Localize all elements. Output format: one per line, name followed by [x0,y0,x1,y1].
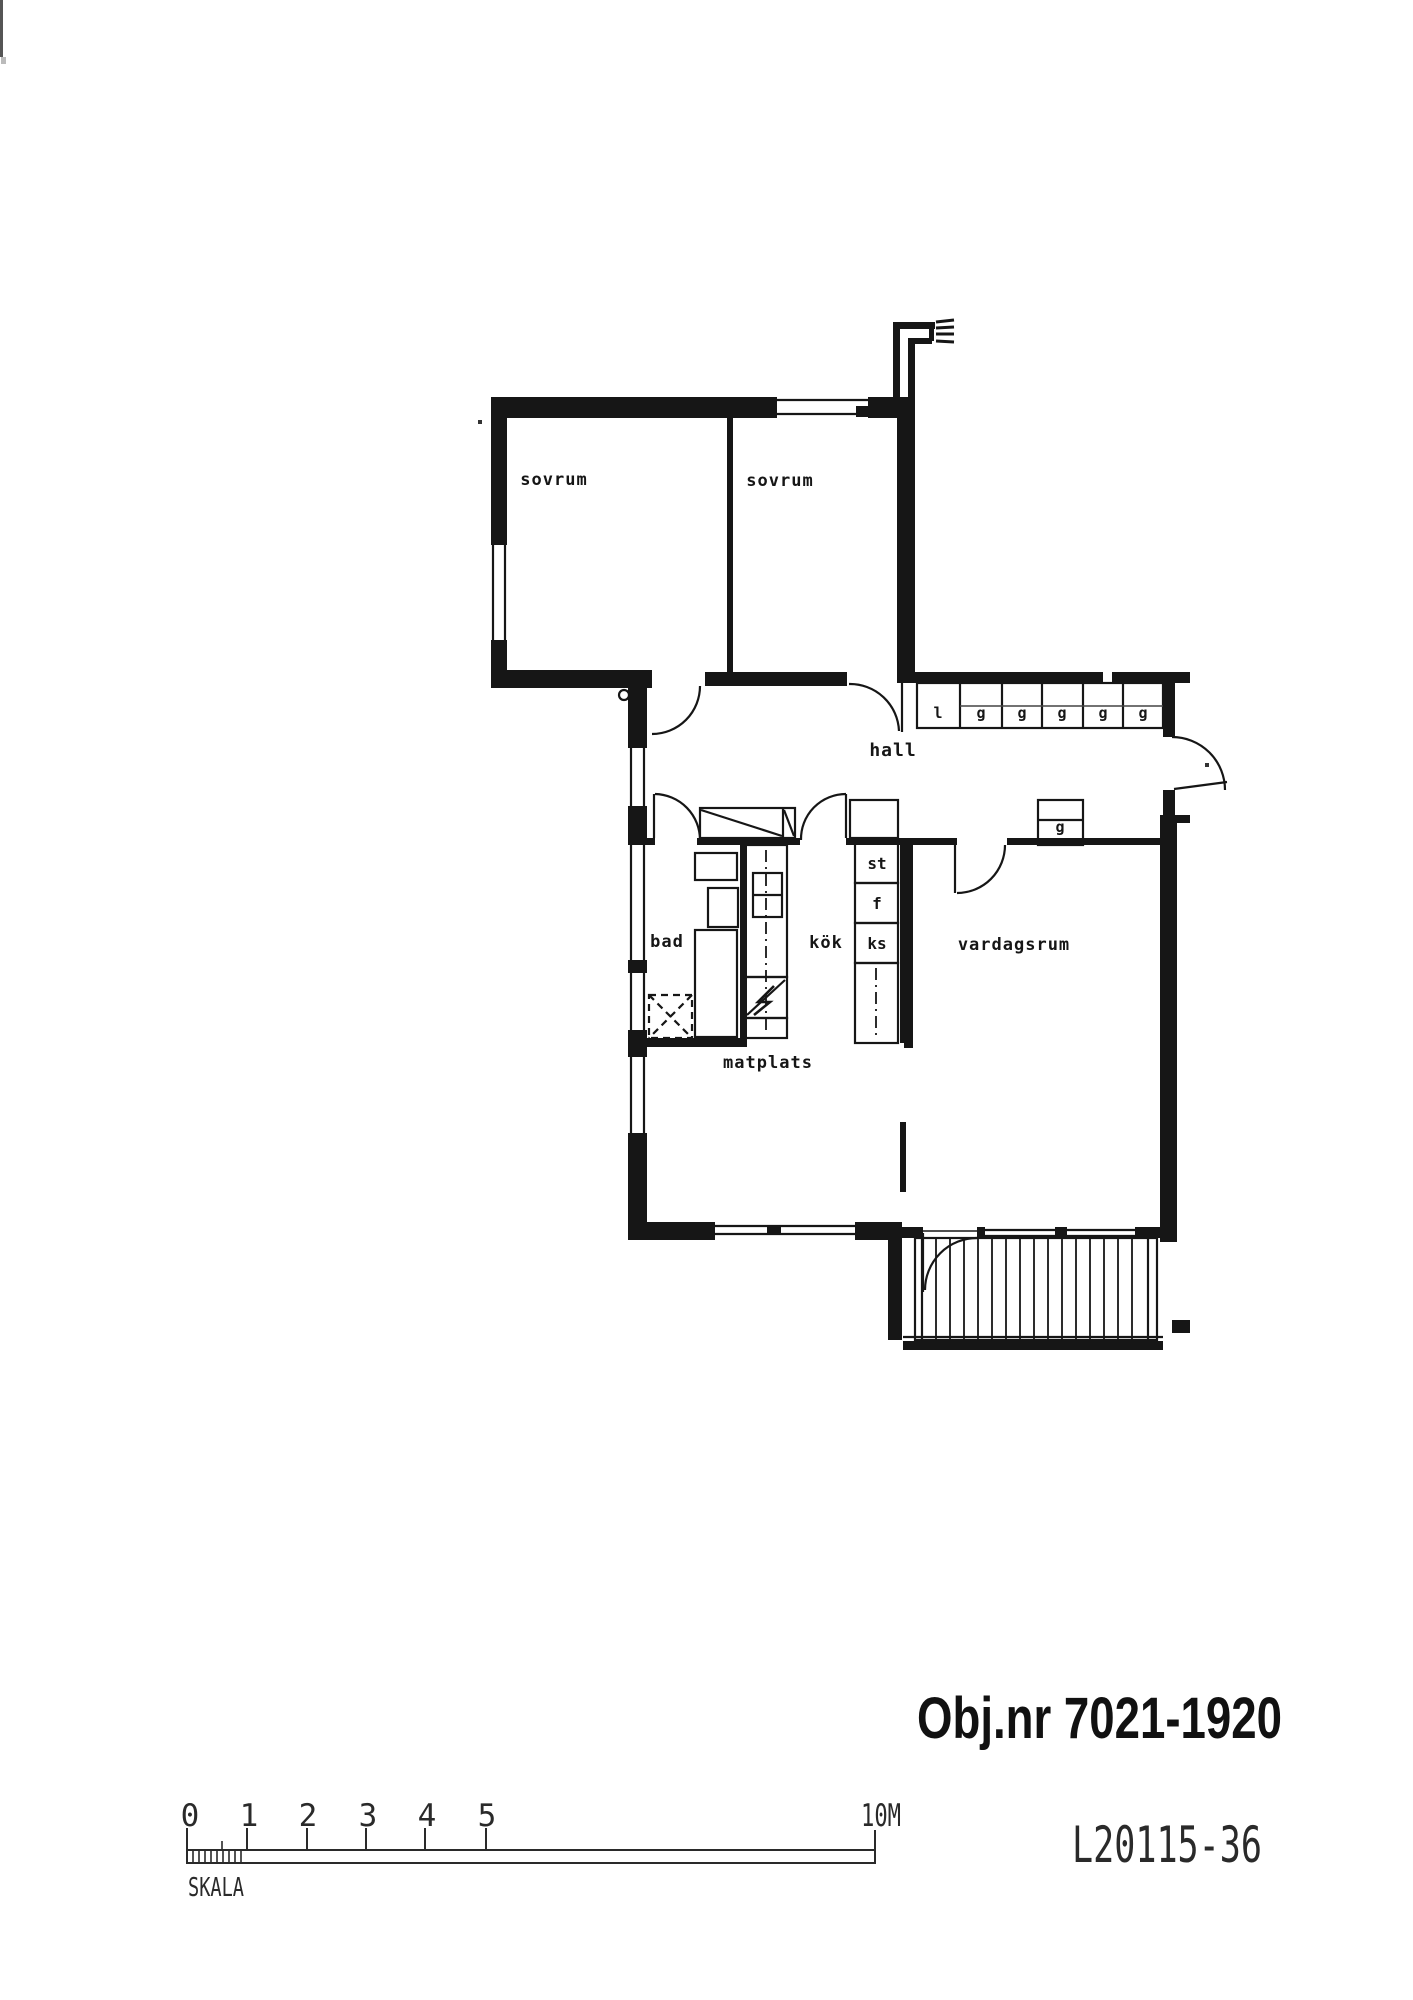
scale-major-ticks [187,1828,875,1863]
floor-plan-canvas: l g g g g g g [0,0,1413,2000]
room-label-sovrum-right: sovrum [746,471,813,491]
closet-g1-label: g [976,704,985,722]
door-arc-sovrum-right [849,684,899,731]
scale-end-label: 10M [861,1798,901,1834]
scan-artifacts [0,0,1209,767]
scale-tick-0: 0 [181,1798,200,1834]
door-arc-balcony [925,1238,977,1290]
hall-furniture [700,800,898,838]
kitchen-unit-labels: st f ks [867,854,886,953]
balcony-planks [936,1238,1132,1340]
closet-g5-label: g [1138,704,1147,722]
sink [695,853,737,880]
floorplan-page: l g g g g g g [0,0,1413,2000]
room-label-hall: hall [869,740,916,761]
scale-tick-1: 1 [240,1798,259,1834]
toilet [708,888,738,927]
closet-l-label: l [933,704,942,722]
scale-tick-5: 5 [478,1798,497,1834]
st-label: st [867,854,886,873]
bathtub [695,930,737,1037]
object-number: Obj.nr 7021-1920 [917,1686,1282,1751]
scale-tick-3: 3 [359,1798,378,1834]
door-arc-bad [655,794,700,840]
scale-bar [187,1828,875,1863]
room-label-matplats: matplats [723,1053,813,1073]
drawing-number: L20115-36 [1072,1816,1262,1874]
wardrobe-row [917,683,1163,728]
balcony [903,1238,1163,1350]
corner-pivot-mark [619,690,629,700]
door-arc-sovrum-left [652,686,700,734]
closet-g-vardagsrum-label: g [1055,818,1064,836]
closet-g4-label: g [1098,704,1107,722]
room-label-kok: kök [809,933,843,953]
closet-g2-label: g [1017,704,1026,722]
door-arc-entrance [1172,737,1225,790]
scale-subticks [193,1841,241,1863]
door-arc-kok [801,794,846,840]
closet-g3-label: g [1057,704,1066,722]
doors [619,683,1227,1292]
wall-break-hatch [936,320,954,342]
room-label-vardagsrum: vardagsrum [958,935,1070,955]
room-label-bad: bad [650,932,684,952]
scale-tick-4: 4 [418,1798,437,1834]
scale-tick-2: 2 [299,1798,318,1834]
room-label-sovrum-left: sovrum [520,470,587,490]
f-label: f [872,894,882,913]
washer-space [649,995,692,1038]
room-labels: sovrum sovrum hall bad kök vardagsrum ma… [520,470,1070,1073]
scale-title: SKALA [188,1873,244,1903]
door-arc-vardagsrum [957,845,1005,893]
apartment-walls [491,322,1190,1340]
ks-label: ks [867,934,886,953]
